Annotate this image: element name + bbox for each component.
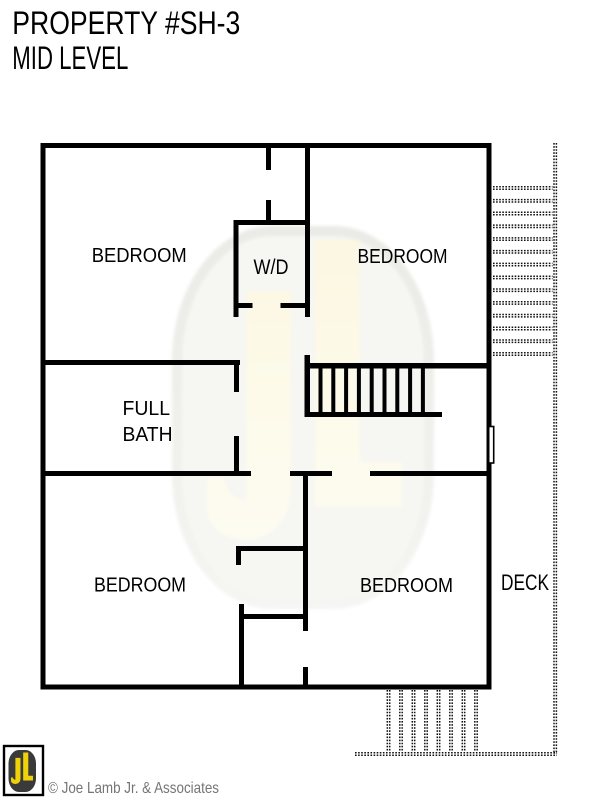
svg-text:BATH: BATH xyxy=(123,424,173,446)
svg-text:© Joe Lamb Jr. & Associates: © Joe Lamb Jr. & Associates xyxy=(48,780,219,797)
svg-text:PROPERTY #SH-3: PROPERTY #SH-3 xyxy=(12,5,240,41)
svg-text:DECK: DECK xyxy=(501,570,549,595)
svg-text:BEDROOM: BEDROOM xyxy=(92,245,187,267)
svg-text:W/D: W/D xyxy=(254,256,289,279)
svg-text:MID LEVEL: MID LEVEL xyxy=(12,40,128,76)
svg-text:BEDROOM: BEDROOM xyxy=(94,575,186,597)
svg-text:FULL: FULL xyxy=(123,398,171,420)
svg-text:BEDROOM: BEDROOM xyxy=(360,575,453,597)
svg-text:BEDROOM: BEDROOM xyxy=(358,246,448,268)
